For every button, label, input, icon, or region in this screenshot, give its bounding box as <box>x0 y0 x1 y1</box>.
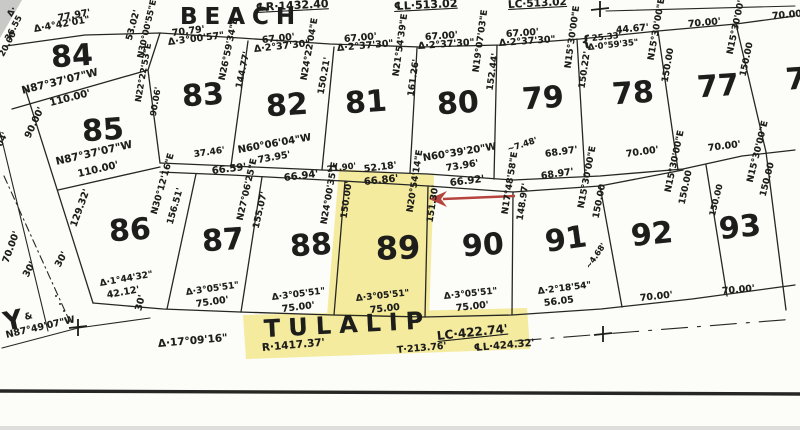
lot-number-90: 90 <box>461 230 505 263</box>
lot-number-87: 87 <box>201 225 245 258</box>
lot-number-89: 89 <box>375 231 421 265</box>
lot-number-91: 91 <box>543 222 589 258</box>
scan-bottom-edge <box>0 426 800 430</box>
lot-number-77: 77 <box>696 71 740 104</box>
lot-number-79: 79 <box>521 83 565 116</box>
lot-number-84: 84 <box>50 41 94 74</box>
lot-number-82: 82 <box>265 90 309 123</box>
lot-number-93: 93 <box>718 211 763 245</box>
lot-number-81: 81 <box>344 87 388 120</box>
plat-map: ℄R·1432.40℄L·513.02LC·513.02BEACH77.97'Δ… <box>0 0 800 430</box>
lot-number-83: 83 <box>181 80 225 113</box>
map-label: 70.00' <box>772 9 800 21</box>
lot-number-86: 86 <box>108 215 152 248</box>
lot-number-88: 88 <box>289 230 333 263</box>
lot-number-78: 78 <box>611 78 655 111</box>
lot-number-76-partial: 7 <box>785 64 800 95</box>
lot-number-92: 92 <box>630 218 675 252</box>
lot-number-80: 80 <box>436 88 480 121</box>
lot-number-85: 85 <box>81 115 125 148</box>
